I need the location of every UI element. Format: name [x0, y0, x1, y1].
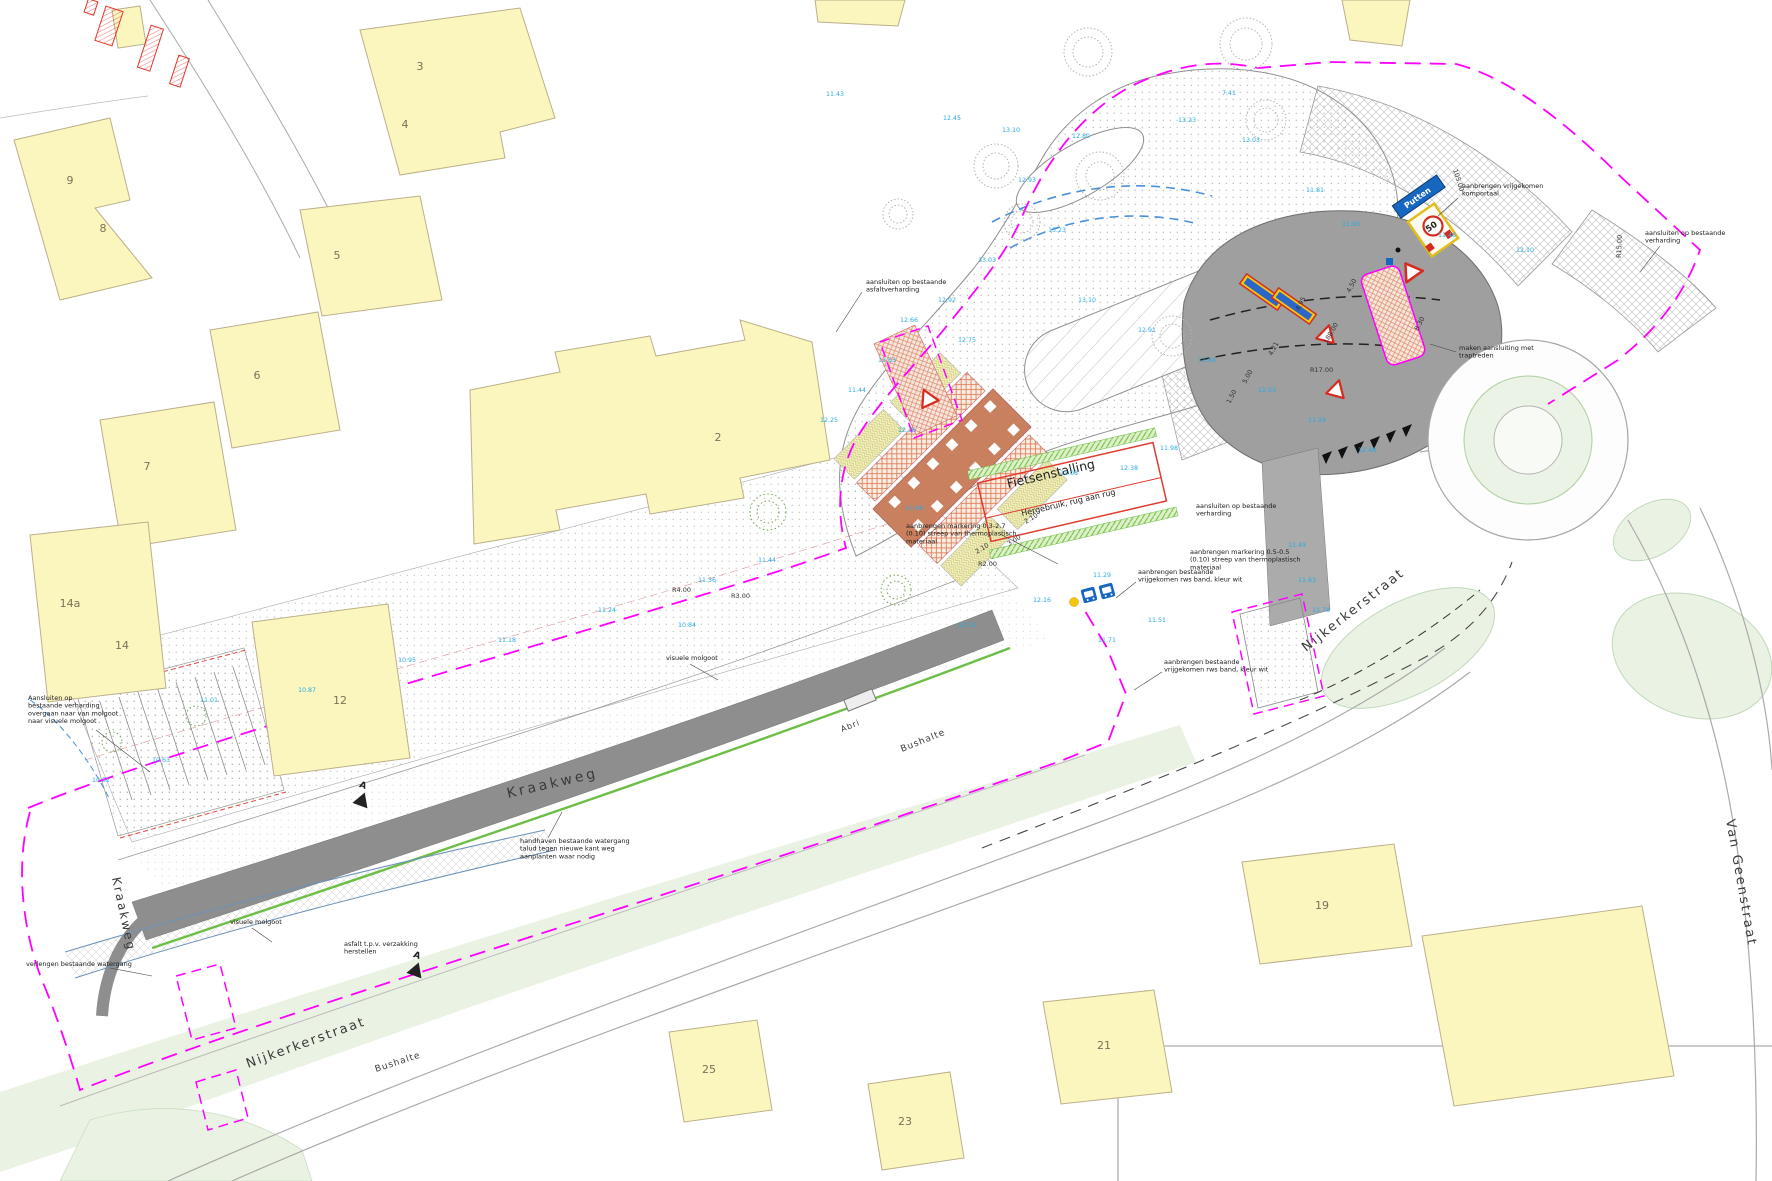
site-plan-drawing: 3498567214a141219212523 KraakwegKraakweg… — [0, 0, 1772, 1181]
spot-height: 11.98 — [1160, 445, 1178, 452]
building-number-21: 21 — [1097, 1039, 1111, 1052]
tree-icon — [883, 199, 913, 229]
dimension-label: R15.00 — [1615, 235, 1624, 258]
spot-height: 11.48 — [1438, 232, 1456, 239]
building-bottom-right — [1422, 906, 1674, 1106]
site-plan-page: 3498567214a141219212523 KraakwegKraakweg… — [0, 0, 1772, 1181]
building-number-9: 9 — [67, 174, 74, 187]
spot-height: 12.91 — [1138, 327, 1156, 334]
spot-height: 11.44 — [848, 387, 866, 394]
spot-height: 12.45 — [943, 115, 961, 122]
building-number-5: 5 — [334, 249, 341, 262]
spot-height: 13.23 — [1048, 227, 1066, 234]
building-number-2: 2 — [715, 431, 722, 444]
dimension-label: R2.00 — [978, 560, 997, 568]
building-number-8: 8 — [100, 222, 107, 235]
spot-height: 10.87 — [298, 687, 316, 694]
building-number-7: 7 — [144, 460, 151, 473]
spot-height: 11.49 — [1288, 542, 1306, 549]
spot-height: 13.10 — [1002, 127, 1020, 134]
sign-post-dot — [1396, 248, 1401, 253]
spot-height: 12.48 — [1358, 447, 1376, 454]
building-9-8 — [14, 118, 152, 300]
building-number-19: 19 — [1315, 899, 1329, 912]
spot-height: 11.84 — [1198, 357, 1216, 364]
spot-height: 10.52 — [92, 777, 110, 784]
street-label-van-geenstraat: Van Geenstraat — [1722, 818, 1759, 947]
street-label-abri: Abri — [839, 718, 861, 734]
building-number-3: 3 — [417, 60, 424, 73]
building-number-25: 25 — [702, 1063, 716, 1076]
building-5 — [300, 196, 442, 316]
building-number-23: 23 — [898, 1115, 912, 1128]
spot-height: 12.03 — [1258, 387, 1276, 394]
spot-height: 11.71 — [1098, 637, 1116, 644]
annotation-leader-line — [1116, 582, 1136, 598]
grass-bottom-left — [60, 1109, 312, 1181]
spot-height: 10.98 — [905, 505, 923, 512]
roundabout — [1428, 340, 1628, 540]
spot-height: 13.63 — [878, 357, 896, 364]
annotation-visuele-molgoot-1: visuele molgoot — [666, 654, 718, 662]
spot-height: 11.29 — [1093, 572, 1111, 579]
spot-height: 11.01 — [200, 697, 218, 704]
tree-icon — [1064, 28, 1112, 76]
spot-height: 13.10 — [1078, 297, 1096, 304]
spot-height: 11.08 — [1060, 470, 1078, 477]
spot-height: 7.41 — [1222, 90, 1236, 97]
building-14a-14 — [30, 522, 166, 702]
spot-height: 12.93 — [1018, 177, 1036, 184]
spot-height: 11.24 — [598, 607, 616, 614]
spot-height: 12.92 — [938, 297, 956, 304]
dimension-label: R17.00 — [1310, 366, 1333, 374]
spot-height: 11.95 — [1342, 221, 1360, 228]
annotation-visuele-molgoot-2: visuele molgoot — [230, 918, 282, 926]
spot-height: 11.63 — [1298, 577, 1316, 584]
spot-height: 12.10 — [958, 622, 976, 629]
spot-height: 12.10 — [1516, 247, 1534, 254]
building-number-14a: 14a — [60, 597, 81, 610]
annotation-asfalt-herstel: asfalt t.p.v. verzakkingherstellen — [344, 940, 418, 956]
spot-height: 13.03 — [978, 257, 996, 264]
lamppost-icon — [1070, 598, 1079, 607]
roundabout-center — [1494, 406, 1562, 474]
annotation-aansluiten-asfalt: aansluiten op bestaandeasfaltverharding — [866, 278, 946, 294]
building-number-12: 12 — [333, 694, 347, 707]
bus-stop-icon — [1080, 586, 1097, 603]
spot-height: 13.23 — [1178, 117, 1196, 124]
annotation-aansluiten-verharding-noordoost: aansluiten op bestaandeverharding — [1645, 229, 1725, 245]
spot-height: 10.95 — [398, 657, 416, 664]
spot-height: 11.18 — [498, 637, 516, 644]
building-23 — [868, 1072, 964, 1170]
building-top-right — [1342, 0, 1410, 46]
grass-blob-right — [1594, 572, 1772, 741]
tree-icon — [974, 144, 1018, 188]
road-topleft-branch — [0, 96, 148, 118]
spot-height: 12.25 — [820, 417, 838, 424]
spot-height: 12.16 — [1033, 597, 1051, 604]
spot-height: 11.78 — [1312, 607, 1330, 614]
street-label-bushalte: Bushalte — [899, 728, 947, 755]
building-number-14: 14 — [115, 639, 129, 652]
spot-height: 12.16 — [898, 427, 916, 434]
annotation-leader-line — [548, 812, 562, 838]
annotation-rws-band-1: aanbrengen bestaandevrijgekomen rws band… — [1138, 568, 1243, 584]
dimension-label: R4.00 — [672, 586, 691, 594]
spot-height: 12.80 — [1072, 133, 1090, 140]
spot-height: 11.36 — [698, 577, 716, 584]
spot-height: 11.81 — [1306, 187, 1324, 194]
annotation-leader-line — [252, 928, 272, 942]
annotation-leader-line — [836, 292, 862, 332]
bus-stop-icon — [1098, 582, 1115, 599]
spot-height: 13.03 — [1242, 137, 1260, 144]
annotation-watergang-verlengen: verlengen bestaande watergang — [26, 960, 132, 968]
building-3-4 — [360, 8, 555, 175]
street-label-bushalte: Bushalte — [374, 1051, 422, 1075]
spot-height: 10.84 — [678, 622, 696, 629]
building-top-middle — [815, 0, 905, 26]
spot-height: 11.51 — [1148, 617, 1166, 624]
building-12 — [252, 604, 410, 776]
grass-blob-right-small — [1603, 486, 1702, 573]
road-topleft-edge1 — [150, 0, 300, 258]
building-25 — [669, 1020, 772, 1122]
spot-height: 12.66 — [900, 317, 918, 324]
dimension-label: R3.00 — [731, 592, 750, 600]
building-number-6: 6 — [254, 369, 261, 382]
building-6 — [210, 312, 340, 448]
spot-height: 12.38 — [1120, 465, 1138, 472]
tree-icon — [1220, 18, 1272, 70]
spot-height: 11.29 — [1308, 417, 1326, 424]
spot-height: 11.43 — [826, 91, 844, 98]
annotation-aansluiten-verharding-oost: aansluiten op bestaandeverharding — [1196, 502, 1276, 518]
spot-height: 10.63 — [152, 757, 170, 764]
grass-island-east — [1303, 563, 1514, 733]
sign-post-blue — [1386, 258, 1393, 265]
building-number-4: 4 — [402, 118, 409, 131]
spot-height: 12.75 — [958, 337, 976, 344]
spot-height: 11.44 — [758, 557, 776, 564]
annotation-watergang-handhaven: handhaven bestaande watergangtalud tegen… — [520, 837, 630, 860]
annotation-leader-line — [1134, 672, 1162, 690]
